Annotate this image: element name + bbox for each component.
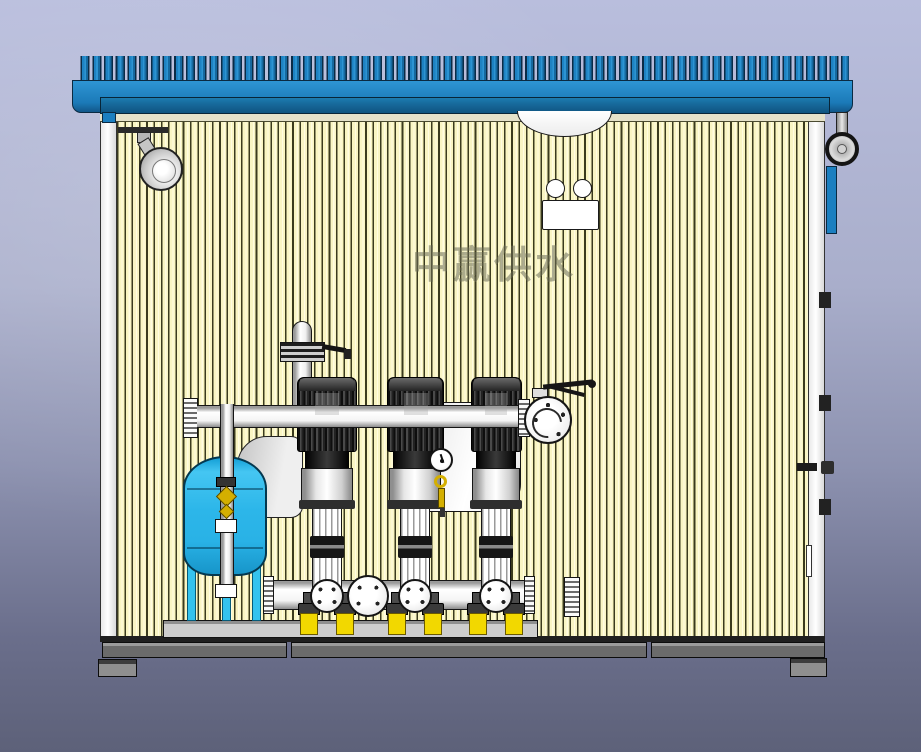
base-frame-segment-right <box>651 642 825 658</box>
side-panel <box>826 166 837 234</box>
base-frame-segment-middle <box>291 642 647 658</box>
vibration-pad <box>505 613 523 635</box>
motor-cap <box>389 378 442 391</box>
motor-cap <box>299 378 355 391</box>
drain-fitting <box>564 577 580 617</box>
valve-lever-knob <box>588 380 596 388</box>
suction-right-flange <box>524 576 535 614</box>
pressure-gauge-icon <box>429 448 453 472</box>
vibration-pad <box>469 613 487 635</box>
support-foot-left <box>98 659 137 677</box>
stool-flange <box>387 500 443 509</box>
motor-logo <box>485 393 507 415</box>
column-coupling <box>310 536 344 558</box>
support-foot-right <box>790 658 827 677</box>
roof-trim-block <box>102 112 116 123</box>
motor-logo <box>315 393 339 415</box>
air-vent-clamp <box>280 342 325 362</box>
gauge-stem <box>438 488 445 508</box>
pipe-bottom-fitting <box>215 584 237 598</box>
pipe-union <box>215 519 237 533</box>
suction-flange <box>398 579 432 613</box>
door-handle-knob <box>821 461 834 474</box>
junction-box <box>542 200 599 230</box>
fan-bracket <box>836 112 848 134</box>
butterfly-valve <box>524 396 572 444</box>
stool-flange <box>470 500 522 509</box>
spotlight-lens <box>152 159 176 183</box>
cad-render-pump-station: 中赢供水 <box>0 0 921 752</box>
vibration-pad <box>300 613 318 635</box>
air-vent-lever-knob <box>344 349 351 359</box>
column-coupling <box>479 536 513 558</box>
door-vent-slot <box>806 545 812 577</box>
vibration-pad <box>424 613 442 635</box>
motor-logo <box>404 393 428 415</box>
gauge-ring <box>434 475 447 488</box>
door-hinge-middle <box>819 395 831 411</box>
manifold-left-flange <box>183 398 198 438</box>
column-coupling <box>398 536 432 558</box>
blind-flange <box>347 575 389 617</box>
discharge-manifold <box>197 405 527 428</box>
pump-head <box>476 451 516 469</box>
roof-corrugation <box>78 56 849 83</box>
motor-stool <box>301 468 353 502</box>
wall-left-corner-column <box>100 113 117 637</box>
vibration-pad <box>388 613 406 635</box>
base-frame-segment-left <box>102 642 287 658</box>
suction-flange <box>310 579 344 613</box>
watermark-text: 中赢供水 <box>412 234 576 289</box>
cable-gland-right-icon <box>573 179 592 198</box>
motor-stool <box>472 468 520 502</box>
suction-left-flange <box>263 576 274 614</box>
vibration-pad <box>336 613 354 635</box>
pump-head <box>305 451 349 469</box>
wall-top-rail <box>100 113 825 122</box>
motor-cap <box>473 378 520 391</box>
motor-stool <box>389 468 441 502</box>
door-hinge-top <box>819 292 831 308</box>
roof-fascia <box>100 97 830 114</box>
cable-gland-left-icon <box>546 179 565 198</box>
stool-flange <box>299 500 355 509</box>
gauge-stem-lower <box>440 508 445 517</box>
door-handle <box>797 463 817 471</box>
suction-flange <box>479 579 513 613</box>
door-hinge-bottom <box>819 499 831 515</box>
exhaust-fan-hub <box>837 144 847 154</box>
